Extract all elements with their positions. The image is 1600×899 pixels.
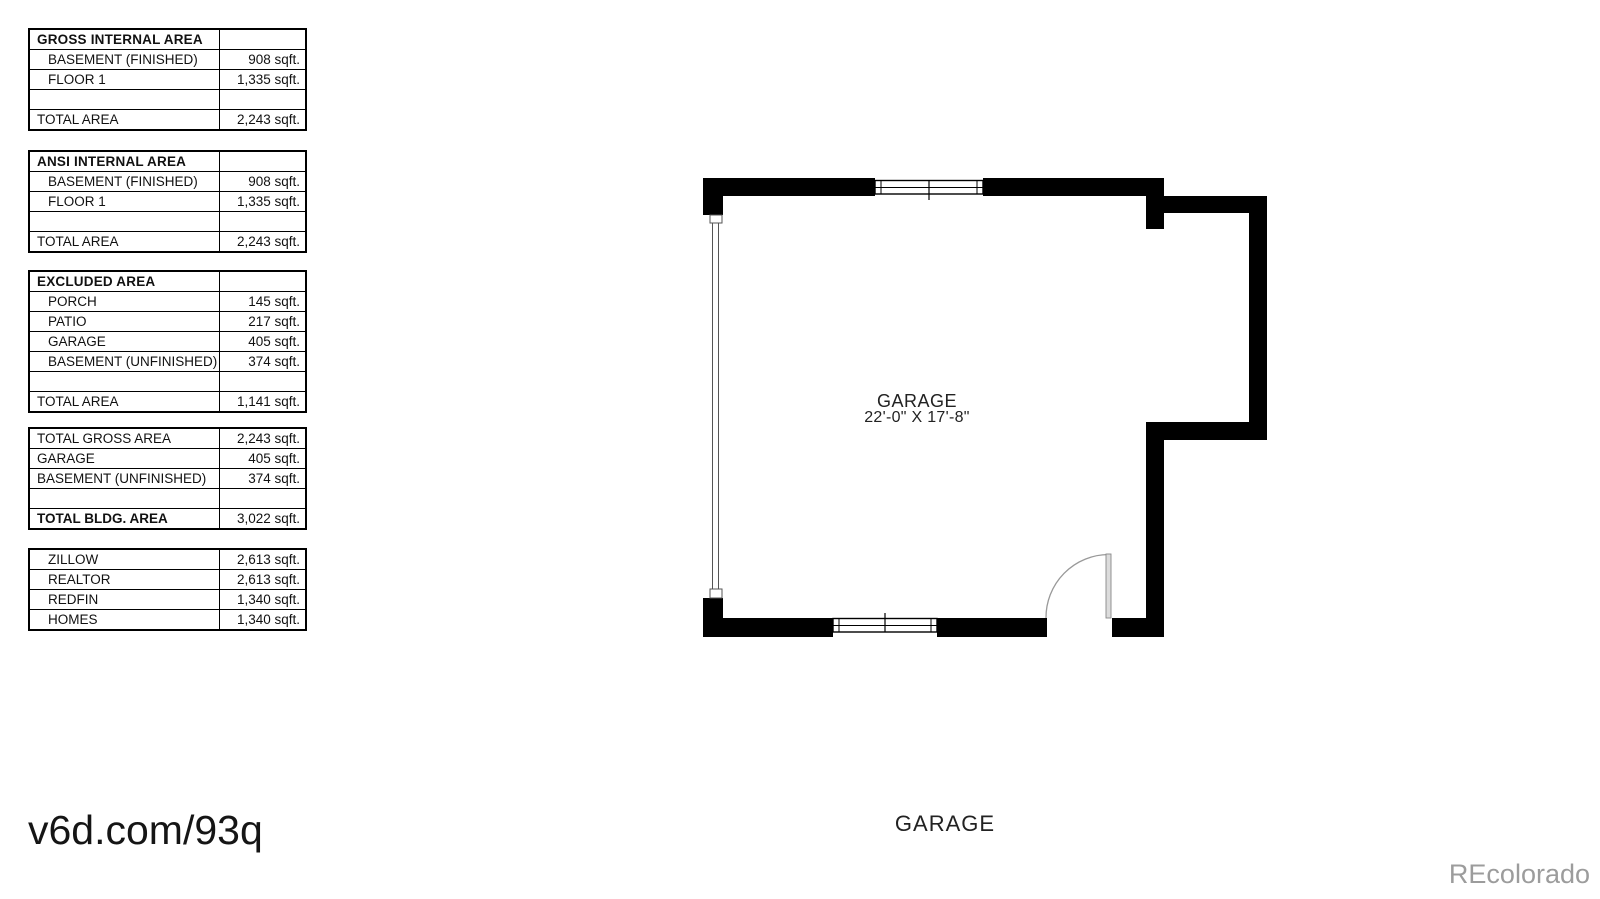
top-wall-left-segment bbox=[703, 178, 875, 196]
alcove-bottom-wall bbox=[1164, 422, 1267, 440]
alcove-right-wall bbox=[1249, 196, 1267, 440]
bottom-wall-right-segment bbox=[1112, 618, 1164, 637]
watermark-url: v6d.com/93q bbox=[28, 810, 263, 851]
door-swing-arc bbox=[1046, 555, 1109, 619]
plan-title: GARAGE bbox=[895, 813, 995, 835]
garage-door bbox=[710, 215, 722, 598]
brand-logo: REcolorado bbox=[1449, 861, 1590, 888]
top-right-wall-return bbox=[1146, 196, 1164, 229]
top-left-corner bbox=[703, 178, 723, 215]
bottom-window bbox=[833, 613, 937, 632]
floor-plan-drawing bbox=[0, 0, 1600, 899]
top-wall-right-segment bbox=[983, 178, 1164, 196]
bottom-left-corner bbox=[703, 598, 723, 637]
room-dimensions: 22'-0" X 17'-8" bbox=[864, 409, 970, 427]
door-leaf bbox=[1106, 554, 1111, 618]
garage-walls bbox=[703, 178, 1267, 637]
top-window bbox=[875, 180, 983, 200]
bottom-wall-middle-segment bbox=[937, 618, 1047, 637]
right-wall bbox=[1146, 422, 1164, 637]
entry-door bbox=[1046, 554, 1111, 618]
floor-plan-page: GROSS INTERNAL AREA BASEMENT (FINISHED) … bbox=[0, 0, 1600, 899]
